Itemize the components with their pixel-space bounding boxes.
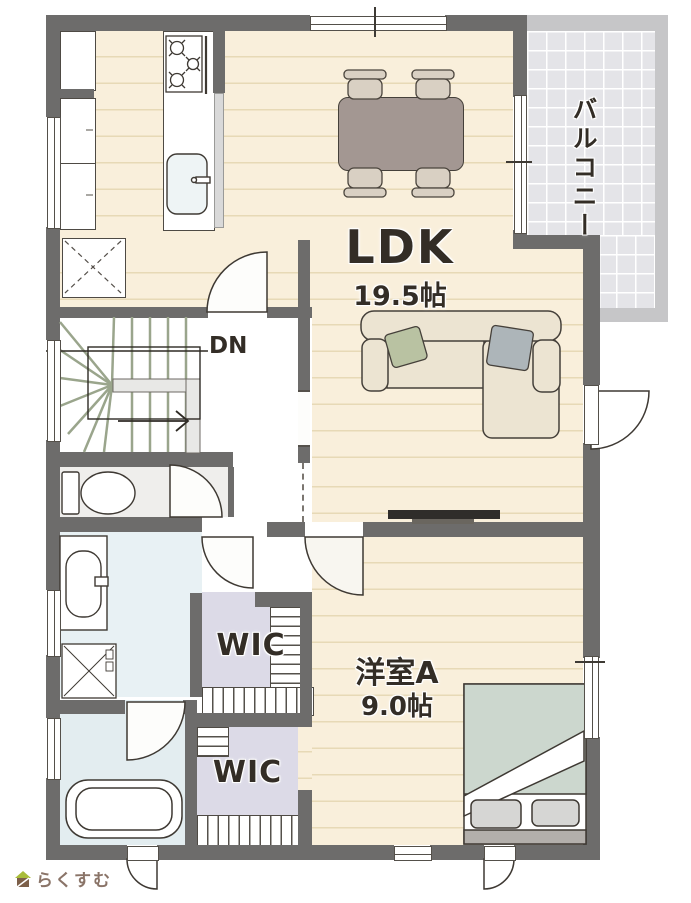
window: [47, 718, 61, 780]
kitchen-sink-icon: [167, 154, 210, 214]
window-tick: [506, 161, 532, 163]
floor-plan: LDK 19.5帖 洋室A 9.0帖 WIC WIC バルコニー DN らくすむ: [0, 0, 691, 903]
window: [514, 95, 527, 234]
door-leaf: [127, 846, 159, 861]
window: [47, 590, 61, 657]
refrigerator-x: [65, 241, 121, 293]
window-tick: [575, 661, 605, 663]
room-label-wic-lower: WIC: [197, 755, 298, 790]
room-label-wic-upper: WIC: [202, 628, 300, 663]
door-leaf: [584, 385, 599, 445]
bed: [464, 684, 586, 844]
tv-icon: [388, 510, 500, 524]
door-arc: [127, 859, 157, 889]
window-tick: [374, 7, 376, 37]
door-arc: [207, 252, 267, 312]
sofa: [361, 311, 561, 438]
window: [47, 117, 61, 229]
washer-pan-icon: [62, 644, 116, 698]
toilet-icon: [62, 472, 135, 514]
wall-opening: [298, 390, 310, 447]
stove-icon: [166, 36, 206, 94]
sofa-cushion-gray: [486, 325, 534, 371]
stairs-dn-label: DN: [209, 333, 253, 359]
room-area-ldk: 19.5帖: [330, 274, 470, 313]
room-label-balcony: バルコニー: [565, 48, 601, 288]
window: [394, 846, 432, 861]
brand-logo: らくすむ: [14, 866, 112, 891]
window: [310, 16, 447, 31]
bathtub-icon: [66, 780, 182, 838]
door-arc: [127, 702, 185, 760]
door-arc: [484, 859, 514, 889]
house-icon: [14, 870, 32, 888]
door-arc: [170, 465, 222, 517]
window: [47, 340, 61, 442]
stair-direction-arrow: [118, 411, 188, 431]
vanity-sink-icon: [60, 536, 108, 630]
door-arc: [591, 391, 649, 449]
door-arc: [202, 537, 253, 588]
cabinet-handles: [86, 130, 93, 195]
brand-logo-text: らくすむ: [36, 866, 112, 891]
stair-landing: [113, 379, 200, 453]
window: [584, 656, 599, 739]
dining-chairs: [344, 70, 454, 197]
room-label-ldk: LDK: [330, 220, 470, 274]
door-arc: [305, 537, 363, 595]
door-leaf: [484, 846, 516, 861]
room-area-bedroom-a: 9.0帖: [327, 686, 467, 723]
